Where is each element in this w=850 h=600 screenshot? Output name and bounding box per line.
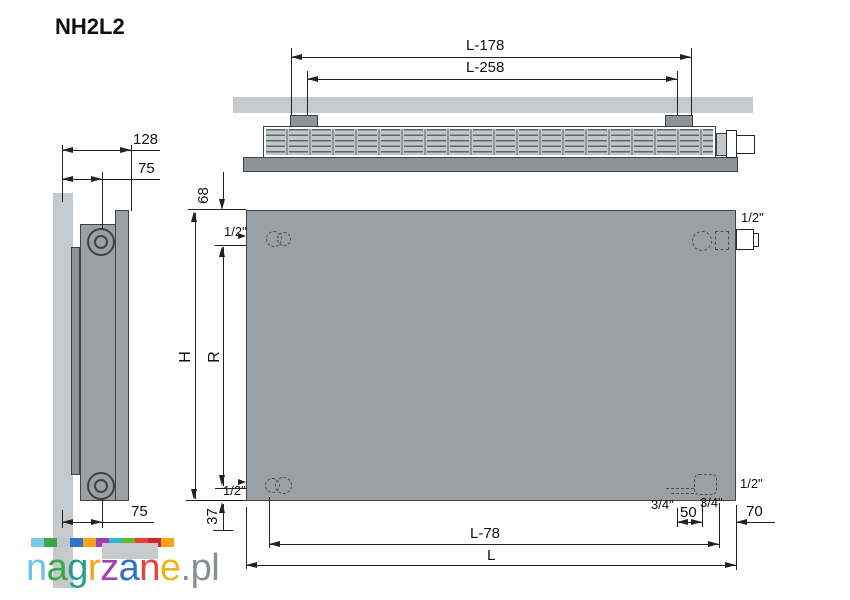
arrowhead bbox=[307, 76, 318, 82]
ext-line bbox=[691, 48, 692, 115]
dim-label-bracket-outer: L-178 bbox=[466, 38, 504, 53]
top-view-base-plate bbox=[243, 157, 738, 172]
connection-stub bbox=[736, 229, 754, 250]
side-view-body bbox=[80, 224, 117, 501]
arrowhead bbox=[291, 54, 302, 60]
logo-letter: . bbox=[181, 549, 191, 587]
arrowhead bbox=[219, 246, 225, 257]
conn-label-three-quarter-left: 3/4" bbox=[651, 498, 674, 511]
arrowhead bbox=[246, 562, 257, 568]
logo-square bbox=[44, 538, 57, 547]
logo-letter: l bbox=[211, 549, 219, 587]
radiator-dimension-diagram: NH2L2 128 75 75 L-178 L-258 bbox=[0, 0, 850, 600]
side-view-wall bbox=[53, 193, 73, 588]
top-view-grille bbox=[263, 126, 716, 158]
logo-letter: n bbox=[139, 549, 160, 587]
dim-label-br-spacing: 50 bbox=[680, 505, 697, 520]
dim-label-length: L bbox=[487, 548, 495, 563]
dim-line-pipe-bottom bbox=[62, 522, 154, 523]
arrowhead bbox=[62, 147, 73, 153]
hidden-connection-bottom-right bbox=[694, 474, 717, 495]
dim-label-bottom-offset: 37 bbox=[205, 508, 220, 525]
dim-line-length bbox=[246, 565, 736, 566]
logo-square bbox=[57, 538, 70, 547]
dim-line-bracket-outer bbox=[291, 57, 691, 58]
dim-label-bracket-inner: L-258 bbox=[466, 60, 504, 75]
logo-letter: a bbox=[119, 549, 140, 587]
conn-label-half-top-right: 1/2" bbox=[741, 211, 764, 224]
ext-line bbox=[62, 145, 63, 202]
ext-tick bbox=[188, 209, 246, 210]
ext-tick bbox=[215, 488, 246, 489]
hidden-thread-line bbox=[666, 488, 694, 489]
arrowhead bbox=[62, 176, 73, 182]
dim-label-height: H bbox=[178, 351, 194, 363]
dim-label-spacing: R bbox=[207, 351, 223, 363]
dim-line-spacing bbox=[223, 247, 224, 486]
arrowhead bbox=[708, 541, 719, 547]
grille-pattern bbox=[266, 129, 713, 155]
logo-square bbox=[161, 538, 174, 547]
dim-label-top-offset: 68 bbox=[196, 187, 211, 204]
conn-label-half-bottom-left: 1/2" bbox=[223, 484, 246, 497]
logo-letter: e bbox=[160, 549, 181, 587]
ext-line bbox=[719, 503, 720, 548]
dim-line-height bbox=[195, 213, 196, 499]
arrowhead bbox=[191, 489, 197, 500]
side-view-bottom-pipe-inner bbox=[94, 479, 108, 493]
model-title: NH2L2 bbox=[55, 14, 125, 40]
arrowhead bbox=[269, 541, 280, 547]
ext-line bbox=[246, 507, 247, 569]
dim-line-length-connections bbox=[269, 544, 719, 545]
connection-stub-cap bbox=[753, 233, 759, 247]
top-view-wall bbox=[233, 97, 753, 113]
arrowhead bbox=[120, 147, 131, 153]
side-view-top-pipe-inner bbox=[94, 235, 108, 249]
logo-letter: n bbox=[26, 549, 47, 587]
ext-line bbox=[131, 145, 132, 211]
ext-line bbox=[677, 71, 678, 115]
dim-label-right-offset: 70 bbox=[746, 504, 763, 519]
ext-tick bbox=[213, 530, 233, 531]
hidden-thread-line bbox=[671, 493, 694, 494]
logo-wordmark: nagrzane.pl bbox=[26, 549, 219, 587]
top-view-bracket-right bbox=[665, 115, 693, 127]
ext-line bbox=[702, 500, 703, 527]
top-view-valve-body bbox=[736, 135, 755, 154]
front-view-panel bbox=[246, 210, 736, 501]
hidden-connection-top-right bbox=[692, 231, 712, 251]
logo-letter: a bbox=[47, 549, 68, 587]
arrowhead bbox=[219, 502, 225, 513]
logo-letter: p bbox=[191, 549, 212, 587]
conn-label-half-bottom-right: 1/2" bbox=[740, 477, 763, 490]
dim-label-depth: 128 bbox=[133, 132, 158, 147]
side-view-rear-panel bbox=[71, 247, 80, 475]
leader-arrow bbox=[238, 479, 246, 485]
hidden-connection-top-right-2 bbox=[715, 231, 729, 250]
dim-label-length-connections: L-78 bbox=[470, 526, 500, 541]
dim-line-bracket-inner bbox=[307, 79, 677, 80]
dim-line-depth bbox=[62, 150, 160, 151]
logo-letter: g bbox=[67, 549, 88, 587]
hidden-connection-top-left-2 bbox=[277, 232, 291, 246]
side-view-front-cover bbox=[115, 210, 129, 501]
hidden-connection-bottom-left-2 bbox=[275, 477, 292, 494]
dim-label-pipe-bottom: 75 bbox=[131, 504, 148, 519]
logo-letter: z bbox=[100, 549, 119, 587]
ext-tick bbox=[186, 500, 246, 501]
ext-line bbox=[736, 505, 737, 570]
arrowhead bbox=[91, 176, 102, 182]
logo-square bbox=[31, 538, 44, 547]
arrowhead bbox=[680, 54, 691, 60]
dim-line-pipe-top bbox=[62, 179, 160, 180]
logo-square bbox=[70, 538, 83, 547]
arrowhead bbox=[666, 76, 677, 82]
ext-line bbox=[102, 498, 103, 528]
dim-line-top-offset bbox=[223, 172, 224, 199]
leader-arrow bbox=[238, 233, 246, 239]
top-view-bracket-left bbox=[290, 115, 318, 127]
dim-label-pipe-top: 75 bbox=[138, 161, 155, 176]
arrowhead bbox=[191, 211, 197, 222]
logo-letter: r bbox=[88, 549, 100, 587]
arrowhead bbox=[62, 519, 73, 525]
arrowhead bbox=[725, 562, 736, 568]
arrowhead bbox=[91, 519, 102, 525]
logo-square bbox=[83, 538, 96, 547]
ext-line bbox=[102, 172, 103, 229]
